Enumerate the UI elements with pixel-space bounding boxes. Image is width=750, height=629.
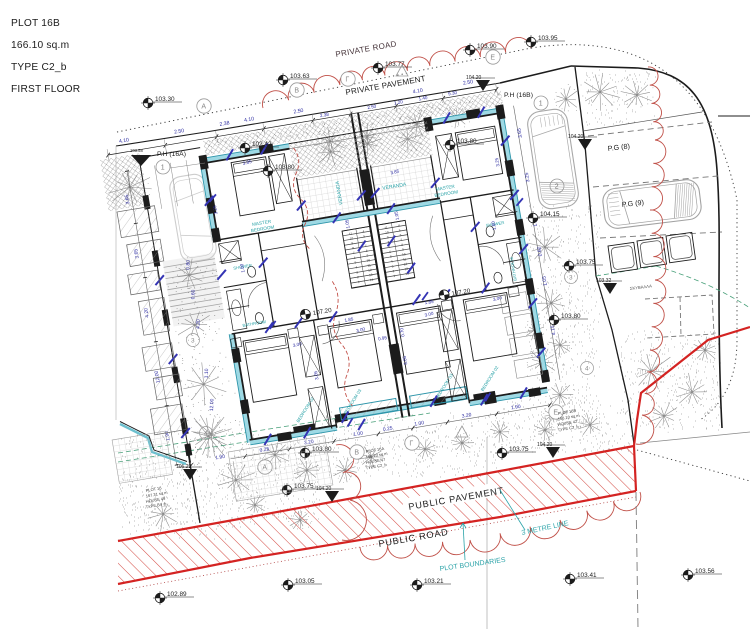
svg-text:103.58: 103.58	[130, 148, 143, 153]
svg-text:103.75: 103.75	[509, 446, 529, 453]
svg-text:0.80: 0.80	[185, 260, 191, 270]
svg-text:103.30: 103.30	[155, 96, 175, 103]
svg-text:P.H (16B): P.H (16B)	[504, 92, 533, 99]
svg-text:0.60: 0.60	[190, 289, 196, 299]
svg-text:3: 3	[191, 337, 195, 344]
svg-text:102.42: 102.42	[252, 141, 272, 148]
svg-text:102.89: 102.89	[167, 591, 187, 598]
svg-text:4: 4	[585, 365, 589, 372]
svg-text:B: B	[294, 88, 299, 95]
svg-text:103.41: 103.41	[577, 572, 597, 579]
svg-text:103.80: 103.80	[275, 164, 295, 171]
svg-text:103.90: 103.90	[477, 43, 497, 50]
svg-text:103.80: 103.80	[561, 313, 581, 320]
svg-text:TYPE C2_b: TYPE C2_b	[11, 62, 67, 73]
svg-text:2: 2	[555, 184, 559, 191]
svg-text:103.05: 103.05	[295, 578, 315, 585]
svg-text:4: 4	[204, 430, 208, 437]
svg-text:1: 1	[539, 101, 543, 108]
svg-text:Γ: Γ	[345, 77, 349, 84]
svg-text:4.20: 4.20	[195, 319, 201, 329]
svg-text:Γ: Γ	[409, 441, 413, 448]
svg-text:12.00: 12.00	[209, 398, 216, 411]
svg-text:1.10: 1.10	[204, 368, 210, 378]
svg-text:B: B	[354, 450, 359, 457]
svg-text:P.H (16A): P.H (16A)	[157, 151, 186, 158]
svg-text:103.63: 103.63	[290, 73, 310, 80]
svg-text:1: 1	[161, 165, 165, 172]
svg-text:104.15: 104.15	[540, 211, 560, 218]
svg-text:166.10 sq.m: 166.10 sq.m	[11, 40, 69, 51]
svg-text:103.80: 103.80	[457, 138, 477, 145]
svg-text:3: 3	[569, 274, 573, 281]
svg-text:PLOT 16B: PLOT 16B	[11, 18, 60, 29]
svg-text:103.56: 103.56	[695, 568, 715, 575]
svg-text:103.21: 103.21	[424, 578, 444, 585]
svg-text:A: A	[201, 104, 206, 111]
svg-text:103.95: 103.95	[538, 35, 558, 42]
svg-text:E: E	[490, 55, 495, 62]
svg-text:FIRST FLOOR: FIRST FLOOR	[11, 84, 80, 95]
svg-text:103.75: 103.75	[576, 259, 596, 266]
